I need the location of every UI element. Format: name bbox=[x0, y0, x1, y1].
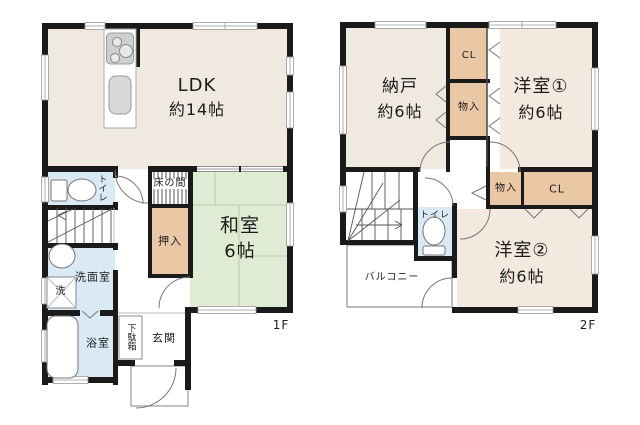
floorplan-canvas: LDK 約14帖 和室 6帖 床の間 押入 トイレ 洗面室 洗 浴室 下駄箱 玄… bbox=[0, 0, 640, 425]
label-cl-lower: CL bbox=[549, 184, 565, 195]
kitchen-sink-icon bbox=[109, 76, 131, 114]
door-arc-toilet-1f bbox=[115, 176, 143, 204]
stairs-1f bbox=[48, 208, 114, 243]
label-laundry: 洗 bbox=[56, 287, 67, 297]
toilet-icon-2f bbox=[423, 217, 445, 255]
label-getabako: 下駄箱 bbox=[126, 324, 135, 351]
stairs-2f bbox=[347, 172, 413, 241]
label-washitsu-size: 6帖 bbox=[224, 243, 255, 261]
label-nando: 納戸 bbox=[382, 79, 418, 96]
door-arc-washitsu bbox=[159, 277, 190, 308]
label-yoshitsu2-size: 約6帖 bbox=[499, 269, 544, 285]
label-yoshitsu1: 洋室① bbox=[513, 78, 568, 96]
label-oshiire: 押入 bbox=[158, 236, 182, 247]
label-cl-upper: CL bbox=[462, 51, 477, 61]
kitchen-counter bbox=[104, 29, 136, 128]
washbasin-icon bbox=[49, 244, 75, 268]
label-monoire-lower: 物入 bbox=[495, 184, 517, 194]
label-yoshitsu2: 洋室② bbox=[494, 242, 549, 260]
1f-washitsu-floor bbox=[190, 169, 290, 310]
toilet-icon-1f bbox=[51, 179, 96, 201]
floor-marker-2f: 2F bbox=[580, 319, 597, 331]
label-tokonoma: 床の間 bbox=[153, 179, 188, 189]
bathtub-icon bbox=[47, 316, 78, 378]
floor-marker-1f: 1F bbox=[273, 319, 290, 331]
label-senmen: 洗面室 bbox=[75, 272, 111, 283]
label-toilet-1f: トイレ bbox=[97, 175, 106, 202]
label-washitsu: 和室 bbox=[220, 217, 260, 236]
label-balcony: バルコニー bbox=[365, 273, 420, 283]
label-nando-size: 約6帖 bbox=[377, 104, 422, 120]
1f-room-fills bbox=[45, 26, 290, 380]
2f-yoshitsu1-floor bbox=[500, 25, 593, 169]
label-yoshitsu1-size: 約6帖 bbox=[518, 105, 563, 121]
label-genkan: 玄関 bbox=[152, 333, 176, 344]
label-monoire-upper: 物入 bbox=[458, 103, 480, 113]
door-arc-hall bbox=[115, 170, 148, 203]
1f-ldk-floor bbox=[45, 26, 290, 169]
label-bath: 浴室 bbox=[86, 338, 110, 349]
label-ldk: LDK bbox=[178, 77, 217, 95]
label-ldk-size: 約14帖 bbox=[169, 102, 225, 118]
door-arc-toilet-2f bbox=[425, 178, 453, 206]
floorplan-svg bbox=[0, 0, 640, 425]
2f-nando-floor bbox=[343, 25, 446, 169]
label-toilet-2f: トイレ bbox=[420, 212, 450, 221]
